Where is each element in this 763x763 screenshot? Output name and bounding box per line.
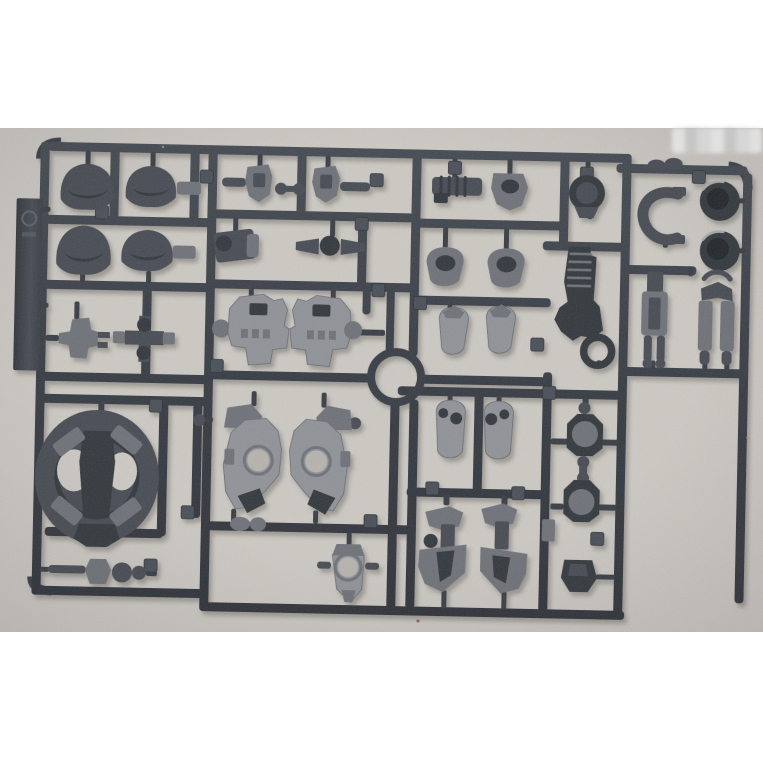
product-photo-page <box>0 0 763 763</box>
sprue-photo <box>0 128 763 632</box>
watermark-blur <box>672 128 762 153</box>
sprue-runner-svg <box>0 128 763 632</box>
film-grain-overlay <box>0 128 763 632</box>
